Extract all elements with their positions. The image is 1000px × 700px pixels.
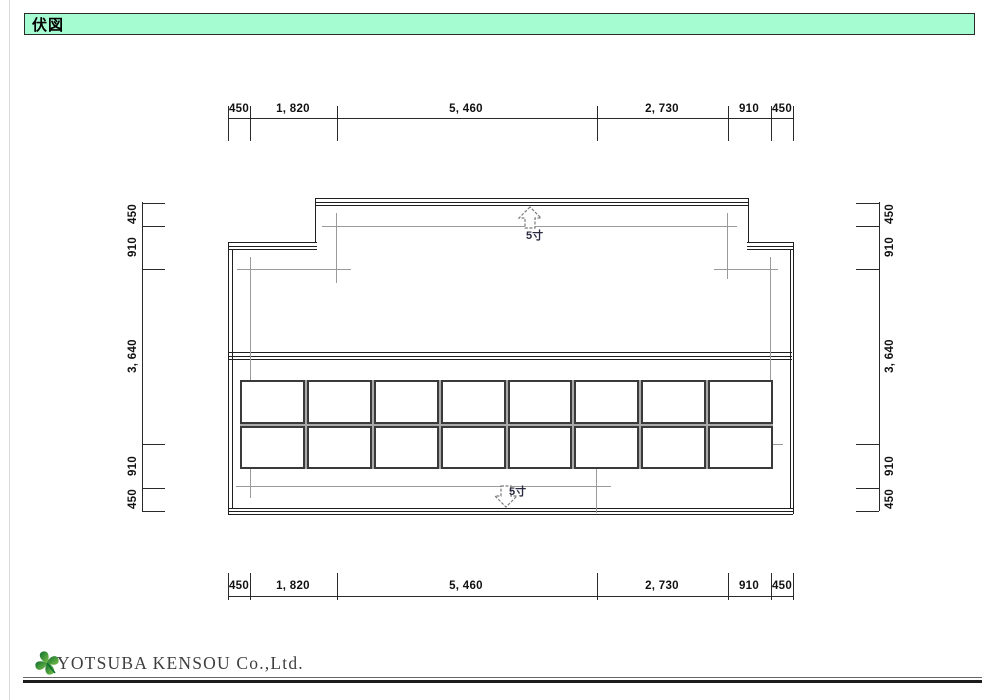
title-bar: 伏図 [24, 13, 975, 35]
panel-cell [708, 426, 773, 470]
dim-label-top-1820: 1, 820 [276, 103, 310, 115]
panel-cell [374, 426, 439, 470]
dimension-line [250, 106, 251, 141]
company-name: YOTSUBA KENSOU Co.,Ltd. [57, 653, 304, 674]
roof-outline-line [232, 249, 233, 508]
panel-cell [641, 426, 706, 470]
panel-cell [240, 426, 305, 470]
dim-label-bottom-450b: 450 [772, 580, 792, 592]
roof-outline-line [793, 242, 794, 514]
panel-cell [508, 380, 573, 424]
dimension-line [142, 203, 165, 204]
roof-outline-line [315, 198, 316, 243]
dim-label-bottom-1820: 1, 820 [276, 580, 310, 592]
slope-label-up: 5寸 [526, 227, 543, 243]
dim-label-right-450b: 450 [884, 489, 896, 509]
dim-label-top-2730: 2, 730 [645, 103, 679, 115]
panel-cell [574, 426, 639, 470]
dim-label-right-450a: 450 [884, 204, 896, 224]
roof-outline-line [747, 246, 793, 247]
dimension-line [856, 444, 879, 445]
footer-rule-top [23, 677, 982, 678]
dimension-line [793, 573, 794, 600]
dimension-line [142, 202, 143, 511]
dimension-line [142, 488, 165, 489]
roof-outline-line [228, 242, 317, 243]
slope-label-down: 5寸 [509, 483, 526, 499]
roof-outline-line [229, 356, 792, 357]
panel-cell [307, 380, 372, 424]
dimension-line [142, 444, 165, 445]
panel-cell [708, 380, 773, 424]
roof-outline-line [315, 202, 748, 203]
dimension-line [856, 203, 879, 204]
dim-label-right-3640: 3, 640 [884, 339, 896, 373]
panel-cell [240, 380, 305, 424]
dim-label-top-910: 910 [739, 103, 759, 115]
dimension-line [879, 202, 880, 511]
roof-outline-line [228, 514, 793, 515]
dimension-line [337, 106, 338, 141]
dimension-line [228, 596, 793, 597]
fusezu-drawing-page: 伏図 450 1, 820 5, 460 2, 730 910 450 450 … [0, 0, 1000, 700]
dim-label-right-910b: 910 [884, 456, 896, 476]
dimension-line [142, 269, 165, 270]
dim-label-bottom-5460: 5, 460 [449, 580, 483, 592]
page-title: 伏図 [25, 14, 64, 35]
panel-cell [441, 380, 506, 424]
panel-cell [307, 426, 372, 470]
dim-label-top-450b: 450 [772, 103, 792, 115]
dimension-line [597, 573, 598, 600]
panel-cell [374, 380, 439, 424]
dim-label-left-450a: 450 [127, 204, 139, 224]
dim-label-bottom-910: 910 [739, 580, 759, 592]
dim-label-left-3640: 3, 640 [127, 339, 139, 373]
dimension-line [142, 226, 165, 227]
dim-label-top-5460: 5, 460 [449, 103, 483, 115]
module-grid-line [236, 486, 611, 487]
roof-outline-line [747, 249, 793, 250]
roof-outline-line [228, 511, 793, 512]
roof-outline-line [790, 249, 791, 508]
panel-cell [441, 426, 506, 470]
module-grid-line [336, 213, 337, 283]
dimension-line [793, 106, 794, 141]
roof-outline-line [228, 242, 229, 514]
roof-outline-line [228, 246, 317, 247]
dimension-line [142, 511, 165, 512]
dimension-line [856, 226, 879, 227]
module-grid-line [237, 269, 351, 270]
dimension-line [337, 573, 338, 600]
dim-label-left-450b: 450 [127, 489, 139, 509]
dim-label-bottom-2730: 2, 730 [645, 580, 679, 592]
dimension-line [856, 511, 879, 512]
dimension-line [597, 106, 598, 141]
dimension-line [228, 118, 793, 119]
dim-label-top-450a: 450 [229, 103, 249, 115]
dimension-line [728, 106, 729, 141]
panel-cell [574, 380, 639, 424]
module-grid-line [727, 213, 728, 279]
roof-outline-line [228, 249, 317, 250]
dim-label-bottom-450a: 450 [229, 580, 249, 592]
panel-cell [508, 426, 573, 470]
module-grid-line [714, 269, 778, 270]
dim-label-left-910b: 910 [127, 456, 139, 476]
page-edge-line [9, 0, 10, 700]
dimension-line [250, 573, 251, 600]
footer-rule [23, 680, 982, 683]
dim-label-right-910a: 910 [884, 237, 896, 257]
roof-outline-line [315, 198, 748, 199]
dimension-line [728, 573, 729, 600]
dimension-line [856, 488, 879, 489]
dim-label-left-910a: 910 [127, 237, 139, 257]
roof-outline-line [229, 352, 792, 353]
dimension-line [856, 269, 879, 270]
panel-cell [641, 380, 706, 424]
panel-grid [240, 380, 773, 469]
roof-outline-line [748, 198, 749, 243]
roof-outline-line [229, 359, 792, 360]
roof-outline-line [747, 242, 793, 243]
